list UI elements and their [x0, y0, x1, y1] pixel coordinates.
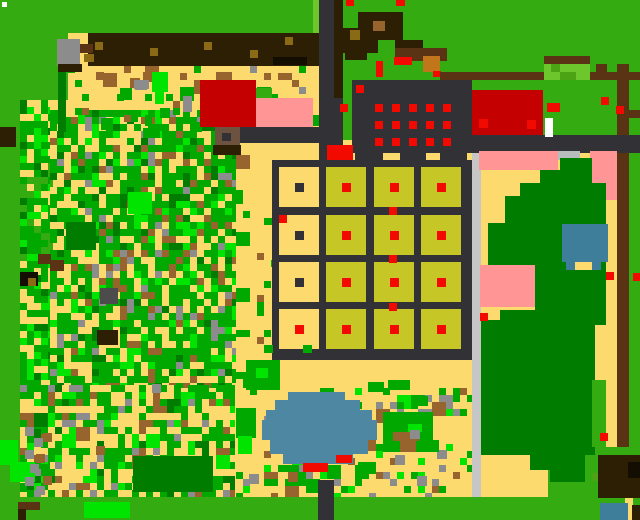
- pond-center[interactable]: [262, 390, 377, 472]
- plot-cell-r0-c3[interactable]: [421, 167, 461, 207]
- plot-cell-r3-c3[interactable]: [421, 309, 461, 349]
- plot-cell-r0-c2[interactable]: [374, 167, 414, 207]
- plot-cell-r1-c0[interactable]: [279, 215, 319, 255]
- plot-cell-r2-c3[interactable]: [421, 262, 461, 302]
- plot-cell-r0-c0[interactable]: [279, 167, 319, 207]
- plot-cell-r0-c1[interactable]: [326, 167, 366, 207]
- plot-cell-r2-c2[interactable]: [374, 262, 414, 302]
- plot-cell-r3-c1[interactable]: [326, 309, 366, 349]
- road-horizontal: [237, 127, 640, 153]
- plot-cell-r2-c0[interactable]: [279, 262, 319, 302]
- tree-mass-right: [481, 158, 606, 470]
- plot-cell-r2-c1[interactable]: [326, 262, 366, 302]
- plot-cell-r3-c0[interactable]: [279, 309, 319, 349]
- plot-cell-r1-c2[interactable]: [374, 215, 414, 255]
- road-stub-bottom: [318, 480, 334, 520]
- pond-bottom-right[interactable]: [600, 503, 628, 520]
- walkway-gray-strip: [472, 153, 481, 497]
- plot-cell-r1-c1[interactable]: [326, 215, 366, 255]
- game-map[interactable]: [0, 0, 640, 520]
- grass-border-top: [0, 0, 640, 33]
- forest-left: [20, 96, 236, 396]
- plot-cell-r1-c3[interactable]: [421, 215, 461, 255]
- plot-cell-r3-c2[interactable]: [374, 309, 414, 349]
